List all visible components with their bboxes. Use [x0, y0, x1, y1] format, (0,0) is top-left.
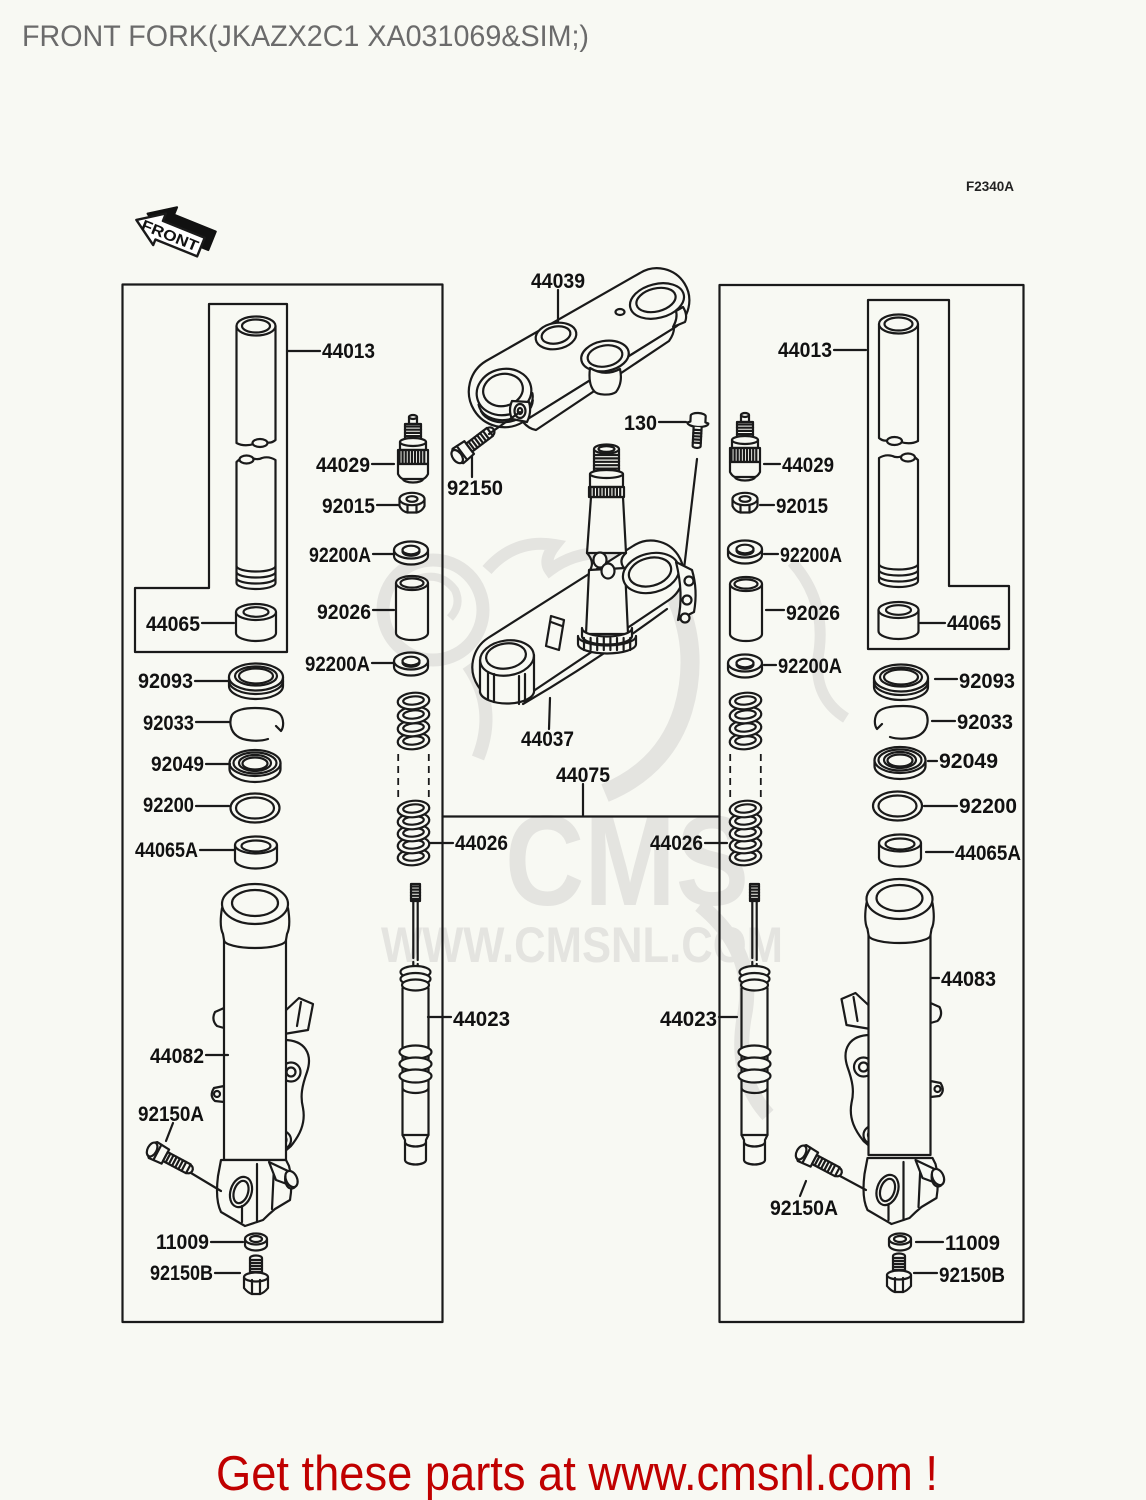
- svg-text:F2340A: F2340A: [966, 178, 1014, 194]
- svg-text:FRONT FORK(JKAZX2C1 XA031069&S: FRONT FORK(JKAZX2C1 XA031069&SIM;): [22, 20, 589, 53]
- svg-text:44013: 44013: [778, 339, 832, 362]
- svg-text:44023: 44023: [453, 1008, 510, 1031]
- svg-text:CMS: CMS: [505, 790, 749, 933]
- svg-text:92200A: 92200A: [309, 544, 371, 567]
- svg-text:44065A: 44065A: [955, 842, 1021, 865]
- svg-text:92200A: 92200A: [780, 544, 842, 567]
- svg-text:44065: 44065: [146, 613, 200, 636]
- svg-text:92033: 92033: [143, 712, 194, 735]
- svg-text:44029: 44029: [316, 454, 370, 477]
- svg-text:44082: 44082: [150, 1045, 204, 1068]
- svg-text:92026: 92026: [786, 602, 840, 625]
- svg-text:44083: 44083: [941, 968, 996, 991]
- svg-text:92049: 92049: [151, 753, 204, 776]
- svg-text:44013: 44013: [322, 340, 375, 363]
- svg-text:44065A: 44065A: [135, 839, 198, 862]
- svg-text:130: 130: [624, 412, 657, 435]
- svg-text:44026: 44026: [650, 832, 703, 855]
- svg-text:92033: 92033: [957, 711, 1013, 734]
- svg-text:44037: 44037: [521, 728, 574, 751]
- svg-text:92026: 92026: [317, 601, 371, 624]
- svg-text:92093: 92093: [959, 670, 1015, 693]
- svg-text:44026: 44026: [455, 832, 508, 855]
- svg-text:92150: 92150: [447, 477, 503, 500]
- svg-text:92200: 92200: [959, 795, 1017, 818]
- svg-text:Get these parts at www.cmsnl.c: Get these parts at www.cmsnl.com !: [216, 1447, 938, 1500]
- svg-text:92093: 92093: [138, 670, 193, 693]
- svg-text:92200: 92200: [143, 794, 194, 817]
- svg-text:92015: 92015: [776, 495, 828, 518]
- svg-text:11009: 11009: [945, 1232, 1000, 1255]
- svg-text:92150B: 92150B: [150, 1262, 213, 1285]
- svg-text:92150A: 92150A: [138, 1103, 204, 1126]
- svg-text:92200A: 92200A: [305, 653, 370, 676]
- svg-text:44065: 44065: [947, 612, 1001, 635]
- svg-text:44023: 44023: [660, 1008, 717, 1031]
- svg-text:92150A: 92150A: [770, 1197, 838, 1220]
- svg-text:92200A: 92200A: [778, 655, 842, 678]
- svg-text:44029: 44029: [782, 454, 834, 477]
- svg-text:92049: 92049: [939, 750, 998, 773]
- svg-text:92015: 92015: [322, 495, 375, 518]
- svg-text:11009: 11009: [156, 1231, 209, 1254]
- svg-text:WWW.CMSNL.COM: WWW.CMSNL.COM: [381, 917, 783, 973]
- svg-text:92150B: 92150B: [939, 1264, 1005, 1287]
